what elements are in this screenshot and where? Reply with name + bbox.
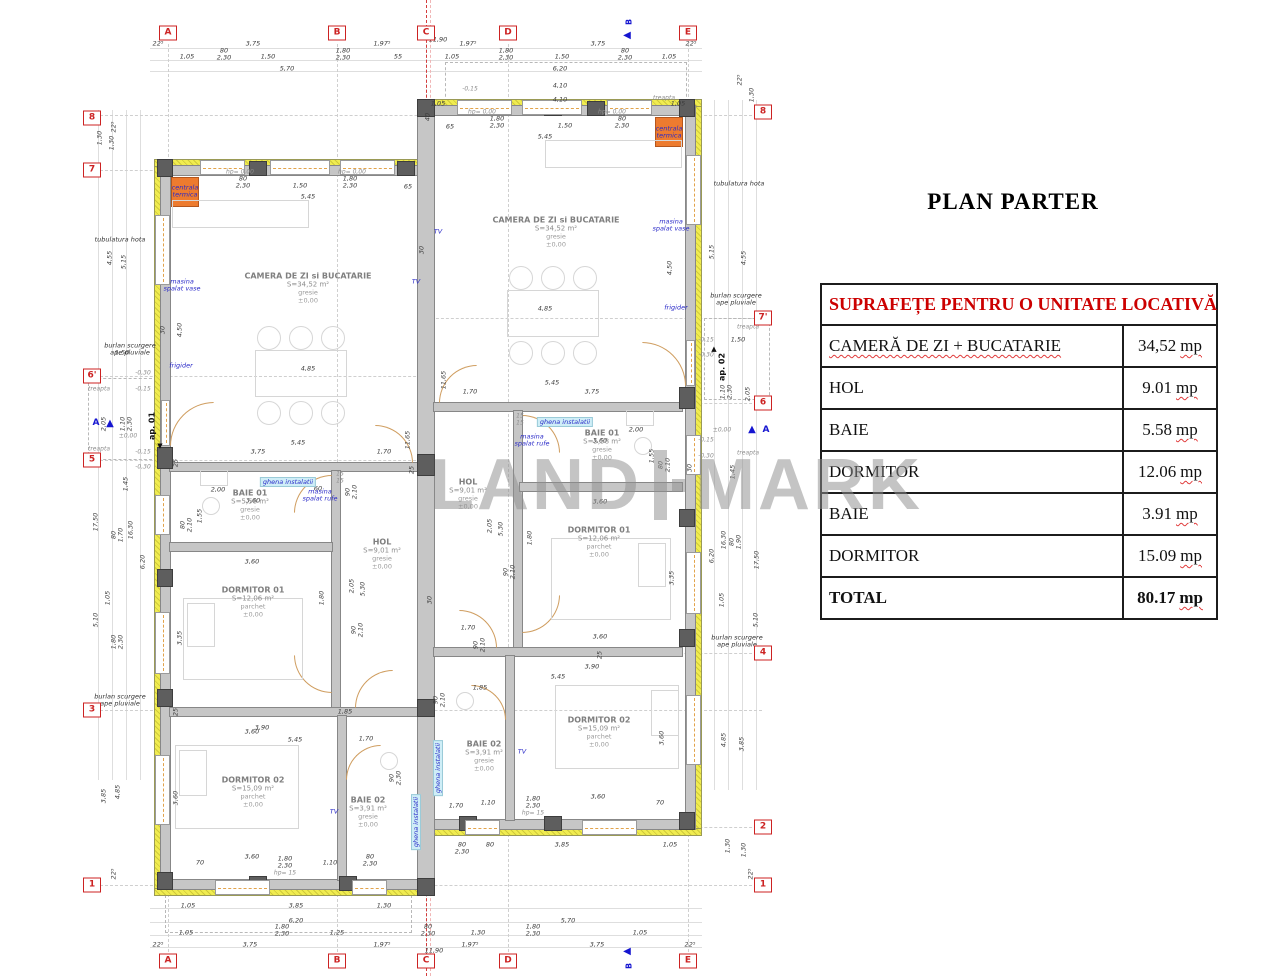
window [161,400,170,446]
area-number: 5.58 [1142,420,1172,440]
dimension-label: 30 [686,464,693,472]
annotation-blue: masina spalat rufe [303,489,338,504]
row-value: 12.06mp [1122,452,1216,492]
dimension-label: 1,05 [633,929,647,936]
dimension-label: 1,70 [377,448,391,455]
dimension-label: 4,10 [553,96,567,103]
room-label: DORMITOR 02S=15,09 m²parchet±0,00 [222,776,285,809]
dimension-label: 3,60 [172,791,179,805]
dimension-label: 3,60 [245,853,259,860]
dimension-label: 1,10 [481,799,495,806]
room-label-line: gresie [492,233,619,241]
dimension-label: 3,35 [668,571,675,585]
dimension-label: 1,97⁵ [373,941,390,948]
column [158,570,172,586]
area-unit: mp [1180,462,1202,482]
dimension-label: 1,50 [293,182,307,189]
dimension-label: 3,75 [585,388,599,395]
dimension-label: 2,05 [744,387,751,401]
table-row: DORMITOR15.09mp [822,536,1216,578]
dimension-label: 3,60 [591,793,605,800]
column [418,879,434,895]
dimension-label: 1,70 [359,735,373,742]
chair-circle [573,266,597,290]
room-label-line: ±0,00 [449,503,487,511]
column [680,630,694,646]
dimension-label: 3,85 [555,841,569,848]
dimension-label: 90 2,10 [473,638,488,652]
table-row: TOTAL80.17mp [822,578,1216,618]
furniture [187,603,215,647]
room-label-line: S=9,01 m² [449,487,487,495]
dimension-label: 80 2,30 [363,854,377,869]
table-row: CAMERĂ DE ZI + BUCATARIE34,52mp [822,326,1216,368]
room-label-line: ±0,00 [222,611,285,619]
axis-bubble-A: A [159,26,177,41]
annotation-cyan: ghena instalatii [433,740,443,796]
dimension-label: 22⁵ [686,40,697,47]
area-number: 9.01 [1142,378,1172,398]
annotation-lvl: -0,30 [135,370,151,377]
dimension-label: 17,50 [753,551,760,570]
wall [506,656,514,820]
area-unit: mp [1176,378,1198,398]
room-label-line: S=5,58 m² [583,438,621,446]
dimension-label: 4,85 [720,733,727,747]
dimension-label: 1,80 [318,591,325,605]
window-glass-line [694,698,695,762]
extension-line [742,100,743,790]
room-label-line: ±0,00 [363,563,401,571]
room-label-line: ±0,00 [492,241,619,249]
dimension-label: 1,05 [431,100,445,107]
axis-bubble-6': 6' [83,369,101,384]
area-unit: mp [1180,336,1202,356]
dimension-label: 1,80 2,30 [278,856,292,871]
dimension-label: 1,30 [377,902,391,909]
column [418,455,434,475]
page-title: PLAN PARTER [893,189,1133,215]
window [686,695,701,765]
axis-bubble-3: 3 [83,703,101,718]
dimension-label: 3,35 [176,631,183,645]
dimension-label: 4,55 [106,251,113,265]
dimension-label: hp= 15 [522,811,544,818]
dimension-label: 80 2,30 [421,924,435,939]
room-label-line: BAIE 01 [231,489,269,498]
window [215,880,270,895]
dimension-label: 1,05 [180,53,194,60]
dimension-label: 1,45 [729,465,736,479]
section-label: A [763,425,770,435]
row-label: DORMITOR [822,452,1122,492]
section-triangle-icon: ◀ [623,31,631,41]
dimension-label: 30 [426,596,433,604]
row-value: 3.91mp [1122,494,1216,534]
dimension-label: 6,20 [708,549,715,563]
room-label: BAIE 02S=3,91 m²gresie±0,00 [465,740,503,773]
window [155,612,170,674]
dimension-label: 3,75 [251,448,265,455]
annotation-lvl: -0,30 [135,464,151,471]
table-row: BAIE5.58mp [822,410,1216,452]
dimension-label: 22⁵ [736,75,743,86]
chair-circle [321,401,345,425]
dimension-label: 5,30 [359,582,366,596]
axis-bubble-D: D [499,954,517,969]
furniture [172,200,309,228]
window [686,155,701,225]
wall [170,708,418,716]
dimension-label: 1,70 [461,624,475,631]
room-label: CAMERA DE ZI si BUCATARIES=34,52 m²gresi… [244,272,371,305]
dimension-label: 11,65 [440,371,447,390]
dimension-label: 1,05 [179,929,193,936]
room-label-line: BAIE 02 [349,796,387,805]
dimension-label: 1,30 [740,843,747,857]
area-unit: mp [1176,420,1198,440]
dimension-label: 3,60 [593,633,607,640]
dimension-label: 1,45 [122,477,129,491]
column [158,448,172,468]
room-label-line: BAIE 02 [465,740,503,749]
dimension-label: 3,60 [593,498,607,505]
room-label-line: S=3,91 m² [349,805,387,813]
dimension-label: 2,00 [211,486,225,493]
dimension-label: 65 [404,183,412,190]
chair-circle [321,326,345,350]
row-label: CAMERĂ DE ZI + BUCATARIE [822,326,1122,366]
row-value: 80.17mp [1122,578,1216,618]
axis-bubble-6: 6 [754,396,772,411]
blueprint-page: CAMERA DE ZI si BUCATARIES=34,52 m²gresi… [0,0,1280,976]
area-number: 15.09 [1138,546,1176,566]
dimension-label: 80 2,30 [217,48,231,63]
window-glass-line [694,438,695,472]
annotation-lvl: -0,15 [698,437,714,444]
furniture [651,690,679,736]
dimension-label: 1,05 [181,902,195,909]
furniture [507,290,599,337]
window-glass-line [163,615,164,671]
dimension-label: 1,80 2,30 [490,116,504,131]
column [158,690,172,706]
room-label-line: ±0,00 [222,801,285,809]
annotation-lvl: ±0,00 [119,433,137,440]
chair-circle [541,266,565,290]
furniture [626,410,654,426]
room-label-line: gresie [349,813,387,821]
annotation-note: burlan scurgere ape pluviale [710,293,761,308]
axis-bubble-8: 8 [83,111,101,126]
window-glass-line [163,758,164,822]
row-label: DORMITOR [822,536,1122,576]
axis-bubble-C: C [417,954,435,969]
dimension-label: 4,85 [114,785,121,799]
dimension-label: 90 2,10 [503,565,518,579]
dimension-label: 16,30 [127,521,134,540]
dimension-label: 1,05 [445,53,459,60]
annotation-blue: TV [518,748,526,755]
dimension-label: 80 2,30 [618,48,632,63]
dimension-label: 3,75 [590,941,604,948]
axis-bubble-B: B [328,954,346,969]
axis-bubble-7: 7 [83,163,101,178]
room-label: HOLS=9,01 m²gresie±0,00 [449,478,487,511]
dimension-label: 5,45 [291,439,305,446]
row-value: 34,52mp [1122,326,1216,366]
area-unit: mp [1179,588,1203,608]
dimension-label: 1,50 [558,122,572,129]
annotation-lvl: treapta [88,386,110,393]
dimension-label: 80 2,30 [455,842,469,857]
dimension-label: 5,70 [280,65,294,72]
annotation-ap: ap. 01 [148,412,157,440]
annotation-blue: TV [330,808,338,815]
room-label-line: ±0,00 [349,821,387,829]
dimension-label: 1,10 [323,859,337,866]
dimension-label: 1,80 2,30 [275,924,289,939]
window [155,755,170,825]
dimension-label: 25 [172,708,179,716]
window-glass-line [355,888,384,889]
room-label-line: HOL [449,478,487,487]
column [680,813,694,829]
toilet-circle [380,752,398,770]
table-row: HOL9.01mp [822,368,1216,410]
room-label-line: gresie [583,446,621,454]
axis-bubble-5: 5 [83,453,101,468]
window [352,880,387,895]
axis-bubble-1: 1 [754,878,772,893]
extension-line [714,100,715,790]
window [686,552,701,614]
dimension-label: 5,45 [288,736,302,743]
annotation-blue: masina spalat vase [163,279,200,294]
dimension-label: 15 15 [516,413,524,426]
area-number: 3.91 [1142,504,1172,524]
dimension-label: 30 [159,326,166,334]
dimension-label: 1,50 [731,336,745,343]
wall [520,483,682,491]
annotation-lvl: ±0,00 [713,427,731,434]
dimension-label: 5,15 [708,245,715,259]
window [582,820,637,835]
room-label-line: gresie [231,506,269,514]
door-arc [170,402,214,446]
dimension-label: 1,80 2,30 [336,48,350,63]
window [270,160,330,175]
room-label-line: ±0,00 [568,741,631,749]
section-label: B [625,19,634,25]
annotation-blue: TV [434,228,442,235]
dimension-label: 3,85 [289,902,303,909]
section-label: B [625,963,634,969]
furniture [545,140,682,168]
room-label-line: S=3,91 m² [465,749,503,757]
dimension-label: 65 [446,123,454,130]
row-value: 5.58mp [1122,410,1216,450]
room-label-line: S=9,01 m² [363,547,401,555]
axis-bubble-2: 2 [754,820,772,835]
dimension-label: 30 [418,246,425,254]
furniture [200,470,228,486]
window-glass-line [218,888,267,889]
dimension-label: 1,05 [663,841,677,848]
wall [338,716,346,880]
chair-circle [289,326,313,350]
room-label-line: S=5,58 m² [231,498,269,506]
axis-bubble-7': 7' [754,311,772,326]
furniture [179,750,207,796]
dimension-label: 6,20 [553,65,567,72]
room-label-line: BAIE 01 [583,429,621,438]
dimension-label: 22⁵ [685,941,696,948]
dimension-label: 80 1,90 [729,535,744,549]
dimension-label: 70 [196,859,204,866]
room-label-line: DORMITOR 01 [568,526,631,535]
axis-bubble-A: A [159,954,177,969]
chair-circle [509,266,533,290]
dimension-label: 1,05 [104,591,111,605]
row-label: HOL [822,368,1122,408]
dimension-label: 25 [408,466,415,474]
dimension-label: 4,50 [666,261,673,275]
dimension-label: 90 2,10 [433,693,448,707]
door-arc [346,745,381,780]
dimension-label: 3,75 [246,40,260,47]
dimension-label: 1,70 [449,802,463,809]
room-label: CAMERA DE ZI si BUCATARIES=34,52 m²gresi… [492,216,619,249]
column [680,388,694,408]
dimension-label: 5,15 [120,255,127,269]
extension-line [728,100,729,790]
annotation-lvl: -0,15 [135,386,151,393]
dimension-label: 1,80 2,30 [526,924,540,939]
room-label-line: DORMITOR 01 [222,586,285,595]
window [465,820,500,835]
furniture [255,350,347,397]
row-value: 15.09mp [1122,536,1216,576]
dimension-label: 80 [486,841,494,848]
dimension-label: 4,85 [538,305,552,312]
annotation-lvl: -0,15 [135,449,151,456]
section-triangle-icon: ◀ [623,947,631,957]
room-label-line: gresie [363,555,401,563]
dimension-label: 80 2,30 [236,176,250,191]
dimension-label: 1,70 [463,388,477,395]
chair-circle [573,341,597,365]
window [155,215,170,285]
dimension-label: 1,97⁵ [461,941,478,948]
dimension-label: 5,10 [752,613,759,627]
dimension-label: 3,90 [585,663,599,670]
annotation-blue: frigider [664,304,688,311]
room-label: DORMITOR 01S=12,06 m²parchet±0,00 [222,586,285,619]
annotation-note: burlan scurgere ape pluviale [94,694,145,709]
annotation-note: burlan scurgere ape pluviale [104,343,155,358]
room-label-line: gresie [449,495,487,503]
dimension-label: 4,55 [740,251,747,265]
annotation-blue: masina spalat rufe [515,434,550,449]
room-label-line: ±0,00 [583,454,621,462]
door-arc [355,670,393,708]
dimension-label: 3,85 [100,789,107,803]
room-label-line: S=12,06 m² [568,535,631,543]
annotation-cyan: ghena instalatii [537,417,593,427]
dimension-label: 1,55 [196,509,203,523]
dimension-label: 3,60 [245,558,259,565]
room-label-line: ±0,00 [244,297,371,305]
dimension-label: 3,60 [658,731,665,745]
room-label: BAIE 02S=3,91 m²gresie±0,00 [349,796,387,829]
row-value: 9.01mp [1122,368,1216,408]
dimension-label: 55 [394,53,402,60]
door-arc [642,342,686,386]
chair-circle [257,326,281,350]
wall [434,648,682,656]
room-label-line: CAMERA DE ZI si BUCATARIE [244,272,371,281]
axis-bubble-D: D [499,26,517,41]
window-glass-line [694,555,695,611]
axis-bubble-8: 8 [754,105,772,120]
wall [332,471,340,708]
row-label: BAIE [822,494,1122,534]
dimension-label: 70 [656,799,664,806]
room-label-line: S=15,09 m² [222,785,285,793]
dimension-label: 80 2,10 [658,458,673,472]
dimension-label: 3,75 [591,40,605,47]
dimension-label: 1,05 [718,593,725,607]
row-label: TOTAL [822,578,1122,618]
dimension-label: 11,65 [404,431,411,450]
dimension-label: 2,00 [629,426,643,433]
dimension-label: 1,30 [108,136,115,150]
dimension-label: 15 15 [336,471,344,484]
annotation-lvl: treapta [88,446,110,453]
axis-bubble-E: E [679,26,697,41]
dimension-label: 4,85 [301,365,315,372]
axis-bubble-4: 4 [754,646,772,661]
dimension-label: 1,80 [526,531,533,545]
dimension-label: 80 2,30 [615,116,629,131]
section-triangle-icon: ▲ [748,425,756,435]
window-glass-line [691,343,692,383]
room-label: DORMITOR 02S=15,09 m²parchet±0,00 [568,716,631,749]
chair-circle [289,401,313,425]
dimension-label: 5,45 [538,133,552,140]
annotation-blue: centrala termica [172,185,199,200]
dimension-label: 90 2,10 [345,485,360,499]
wall [170,543,332,551]
area-number: 12.06 [1138,462,1176,482]
dimension-label: 6,20 [139,555,146,569]
dimension-label: 1,30 [724,839,731,853]
annotation-lvl: -0,30 [698,352,714,359]
axis-bubble-E: E [679,954,697,969]
column [545,817,561,830]
chair-circle [541,341,565,365]
dimension-label: 22⁵ [153,941,164,948]
dimension-label: 25 [596,651,603,659]
column [158,160,172,176]
dimension-label: 3,85 [738,737,745,751]
dimension-label: 1,30 [96,131,103,145]
dimension-label: 5,70 [561,917,575,924]
floor-plan: CAMERA DE ZI si BUCATARIES=34,52 m²gresi… [0,0,800,976]
column [158,873,172,889]
chair-circle [257,401,281,425]
